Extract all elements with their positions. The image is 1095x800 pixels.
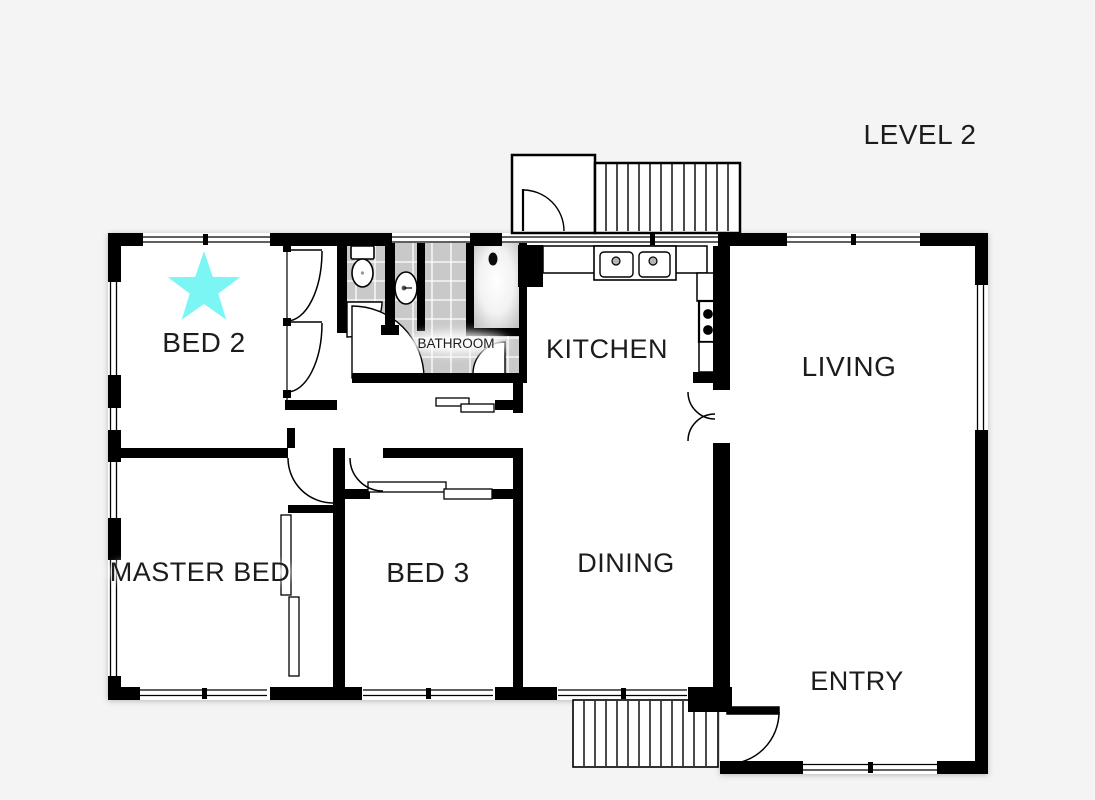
vanity-sink-icon [395,272,417,304]
floor-plan: BED 2 MASTER BED BED 3 BATHROOM KITCHEN … [0,0,1095,800]
room-label-entry: ENTRY [810,666,904,696]
room-label-bed3: BED 3 [386,557,469,588]
room-label-kitchen: KITCHEN [546,334,668,364]
floor-plan-page: BED 2 MASTER BED BED 3 BATHROOM KITCHEN … [0,0,1095,800]
bathtub-icon [474,243,519,328]
master-robe-slider [289,597,299,676]
room-label-master-bed: MASTER BED [110,557,291,587]
kitchen-sink-icon [594,246,676,280]
linen-slider [461,404,494,412]
room-label-bed2: BED 2 [162,327,245,358]
stairs-upper [512,155,740,233]
room-label-bathroom: BATHROOM [418,336,495,351]
room-label-living: LIVING [802,351,897,382]
bed3-robe-slider [444,489,492,499]
toilet-icon [351,246,374,287]
page-title: LEVEL 2 [864,119,977,150]
room-label-dining: DINING [577,548,675,578]
